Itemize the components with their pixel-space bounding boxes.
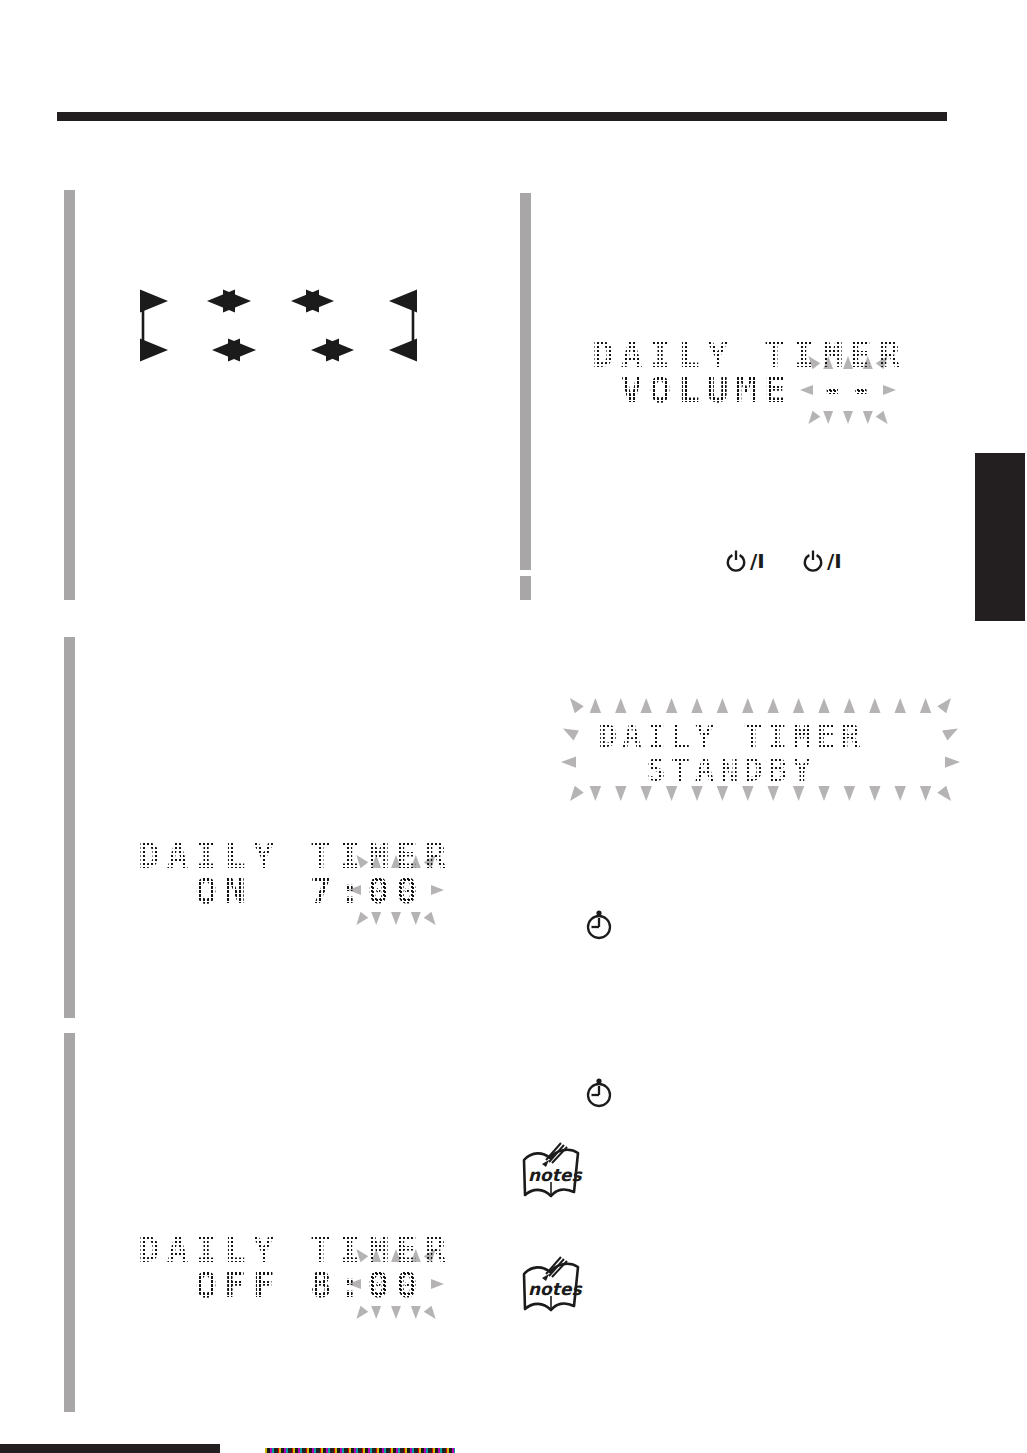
mode-cycle-diagram [135, 288, 435, 363]
cycle-right-bracket-arrow [394, 301, 413, 350]
lcd-volume-line2-prefix: VOLUME [592, 369, 821, 410]
power-label: /I [827, 551, 842, 571]
power-icon [724, 548, 748, 574]
step-bar-5 [520, 576, 531, 600]
step-bar-4 [520, 193, 531, 570]
power-icon [801, 548, 825, 574]
lcd-on-timer-line2: ON 7:00 [138, 873, 425, 909]
lcd-on-timer-line1: DAILY TIMER [138, 838, 453, 874]
step-bar-3 [64, 1033, 75, 1412]
lcd-standby-line1: DAILY TIMER [598, 720, 865, 752]
power-button-unit: /I [801, 548, 842, 574]
page-heading-rule [57, 112, 947, 121]
notes-label: notes [528, 1279, 582, 1299]
lcd-volume-line1: DAILY TIMER [592, 337, 907, 373]
timer-clock-icon [584, 1076, 614, 1108]
power-label: /I [750, 551, 765, 571]
chapter-side-tab [975, 453, 1025, 621]
lcd-on-timer-line2-prefix: ON 7: [138, 870, 367, 911]
notes-icon: notes [516, 1250, 586, 1322]
lcd-volume-blink-value: -- [821, 369, 878, 410]
lcd-off-timer-blink-value: 00 [367, 1264, 424, 1305]
notes-label: notes [528, 1165, 582, 1185]
lcd-off-timer-line2: OFF 8:00 [138, 1267, 425, 1303]
step-bar-1 [64, 190, 75, 600]
manual-page: DAILY TIMER VOLUME -- /I /I DAILY TIMER … [0, 0, 1027, 1453]
power-button-remote: /I [724, 548, 765, 574]
lcd-volume-line2: VOLUME -- [592, 372, 879, 408]
lcd-off-timer-line1: DAILY TIMER [138, 1232, 453, 1268]
timer-clock-icon [584, 908, 614, 940]
footer-rule [0, 1444, 220, 1453]
step-bar-2 [64, 637, 75, 1018]
lcd-off-timer-line2-prefix: OFF 8: [138, 1264, 367, 1305]
lcd-standby-line2: STANDBY [598, 754, 816, 786]
print-artifact [265, 1448, 455, 1453]
notes-icon: notes [516, 1136, 586, 1208]
cycle-left-bracket-arrow [143, 301, 163, 350]
lcd-on-timer-blink-value: 00 [367, 870, 424, 911]
